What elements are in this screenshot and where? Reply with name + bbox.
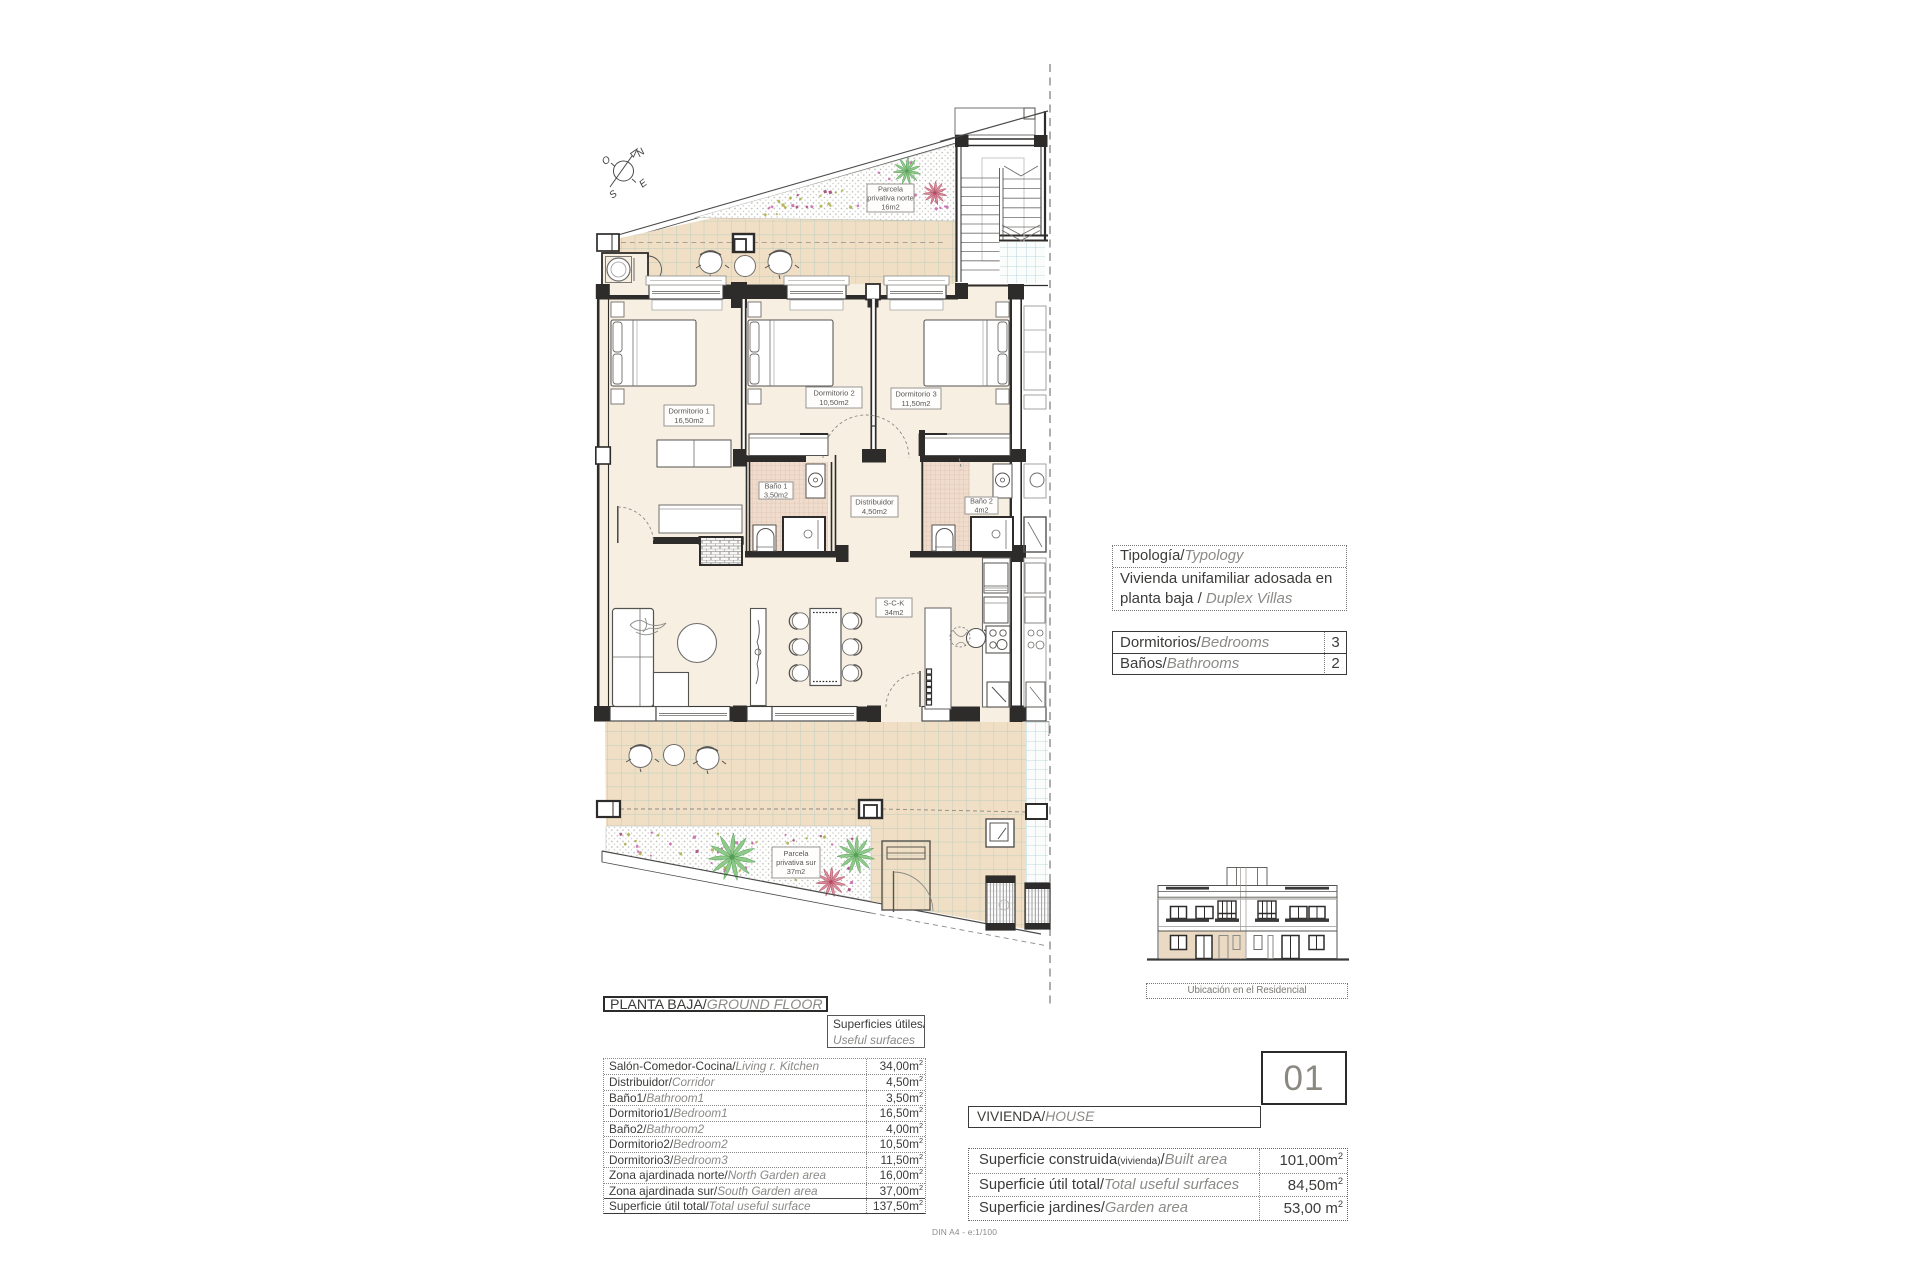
svg-text:11,50m2: 11,50m2: [902, 399, 931, 408]
svg-text:Dormitorio 2: Dormitorio 2: [813, 389, 854, 398]
svg-text:Distribuidor: Distribuidor: [855, 498, 894, 507]
svg-text:Parcela: Parcela: [878, 185, 904, 194]
svg-text:Baño 1: Baño 1: [765, 482, 788, 491]
svg-text:O: O: [600, 154, 613, 168]
svg-text:S-C-K: S-C-K: [884, 599, 905, 608]
svg-text:Parcela: Parcela: [783, 849, 809, 858]
svg-text:4,50m2: 4,50m2: [862, 507, 887, 516]
svg-text:N: N: [635, 146, 648, 160]
svg-text:10,50m2: 10,50m2: [819, 398, 849, 407]
svg-text:S: S: [607, 188, 619, 201]
svg-text:Dormitorio 3: Dormitorio 3: [895, 390, 936, 399]
svg-text:3,50m2: 3,50m2: [764, 490, 788, 499]
svg-text:Dormitorio 1: Dormitorio 1: [668, 407, 709, 416]
svg-text:34m2: 34m2: [885, 608, 904, 617]
svg-text:37m2: 37m2: [787, 867, 806, 876]
svg-text:E: E: [637, 177, 649, 190]
svg-text:privativa sur: privativa sur: [776, 858, 816, 867]
svg-text:16m2: 16m2: [881, 203, 900, 212]
svg-text:privativa norte: privativa norte: [867, 194, 913, 203]
svg-text:4m2: 4m2: [975, 505, 989, 514]
svg-text:16,50m2: 16,50m2: [674, 416, 704, 425]
svg-text:Baño 2: Baño 2: [970, 497, 993, 506]
